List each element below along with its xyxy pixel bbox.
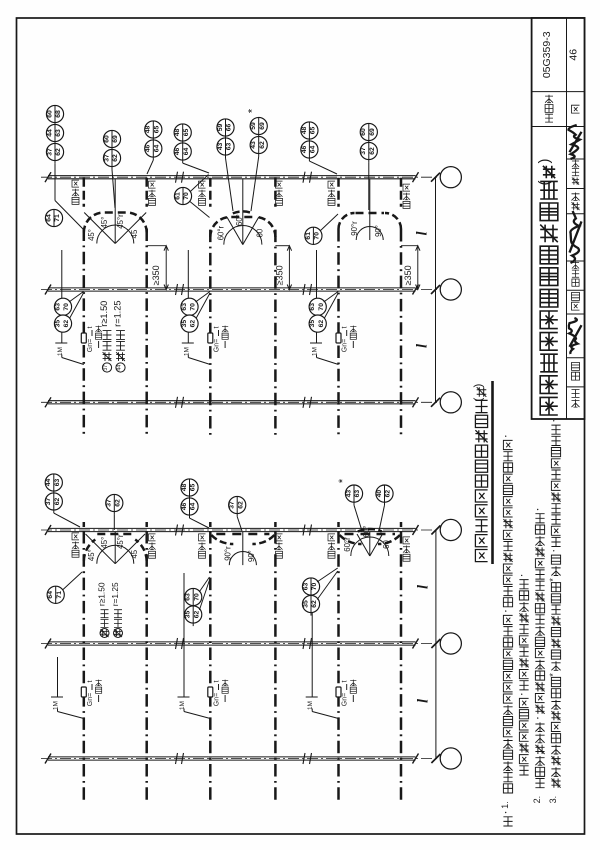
svg-text:64: 64 <box>45 214 52 222</box>
svg-text:48: 48 <box>145 126 152 134</box>
svg-text:64: 64 <box>47 591 54 599</box>
svg-text:35: 35 <box>54 320 61 328</box>
svg-text:71: 71 <box>54 214 61 222</box>
svg-text:05G359-3: 05G359-3 <box>541 31 553 78</box>
svg-text:63: 63 <box>354 490 361 498</box>
svg-text:69: 69 <box>112 135 119 143</box>
svg-text:l: l <box>415 344 431 348</box>
svg-text:≥350: ≥350 <box>403 265 413 285</box>
svg-text:1M: 1M <box>183 347 190 356</box>
svg-text:62: 62 <box>385 490 392 498</box>
svg-text:r=1.25: r=1.25 <box>113 301 123 327</box>
svg-text:45: 45 <box>130 229 139 238</box>
svg-text:t: t <box>342 326 349 328</box>
svg-text:45°: 45° <box>87 229 96 241</box>
svg-text:1M: 1M <box>312 347 319 356</box>
svg-text:1.: 1. <box>500 801 510 809</box>
svg-text:45°: 45° <box>87 549 96 561</box>
svg-text:Gn=: Gn= <box>342 339 349 352</box>
svg-text:64: 64 <box>190 503 197 511</box>
svg-text:l: l <box>416 699 432 703</box>
svg-text:61: 61 <box>305 232 312 240</box>
svg-text:70: 70 <box>63 303 70 311</box>
svg-text:62: 62 <box>311 600 318 608</box>
svg-text:65: 65 <box>154 126 161 134</box>
svg-text:Gn=: Gn= <box>214 693 221 706</box>
svg-text:2.: 2. <box>532 796 542 804</box>
svg-text:60°r: 60°r <box>216 226 225 241</box>
svg-text:Gn=: Gn= <box>342 693 349 706</box>
svg-text:62: 62 <box>190 320 197 328</box>
svg-text:(: ( <box>536 181 553 186</box>
svg-text:62: 62 <box>237 501 244 509</box>
svg-text:62: 62 <box>63 320 70 328</box>
svg-text:63: 63 <box>309 303 316 311</box>
svg-text:60°r: 60°r <box>343 537 352 552</box>
svg-text:65: 65 <box>183 129 190 137</box>
svg-text:r=1.25: r=1.25 <box>110 582 120 606</box>
svg-text:43: 43 <box>217 143 224 151</box>
svg-text:t: t <box>214 326 221 328</box>
svg-text:43: 43 <box>345 490 352 498</box>
svg-text:62: 62 <box>318 320 325 328</box>
svg-text:62: 62 <box>115 499 122 507</box>
svg-text:Gn=: Gn= <box>214 339 221 352</box>
svg-text:1M: 1M <box>307 701 314 710</box>
svg-text:48: 48 <box>301 127 308 135</box>
svg-text:90°: 90° <box>374 225 383 237</box>
svg-text:62: 62 <box>259 141 266 149</box>
svg-text:35: 35 <box>302 600 309 608</box>
svg-text:*: * <box>337 478 349 483</box>
svg-text:44: 44 <box>45 479 52 487</box>
svg-text:48: 48 <box>181 484 188 492</box>
svg-text:45°r: 45°r <box>116 534 125 549</box>
svg-text:66: 66 <box>226 124 233 132</box>
svg-text:63: 63 <box>302 583 309 591</box>
svg-text:60: 60 <box>103 135 110 143</box>
svg-text:63: 63 <box>55 129 62 137</box>
svg-text:r≥1.50: r≥1.50 <box>99 301 109 327</box>
svg-text:45°: 45° <box>100 537 109 549</box>
svg-text:71: 71 <box>56 591 63 599</box>
svg-text:45°: 45° <box>100 217 109 229</box>
svg-text:45: 45 <box>130 549 139 558</box>
svg-text:62: 62 <box>55 148 62 156</box>
svg-text:≥350: ≥350 <box>151 265 161 285</box>
svg-text:35: 35 <box>181 320 188 328</box>
svg-text:*: * <box>548 578 558 582</box>
svg-text:t: t <box>342 680 349 682</box>
svg-text:44: 44 <box>46 129 53 137</box>
svg-text:90°: 90° <box>247 550 256 562</box>
svg-text:l: l <box>415 231 431 235</box>
svg-text:64: 64 <box>310 146 317 154</box>
svg-text:63: 63 <box>185 593 192 601</box>
svg-text:70: 70 <box>193 593 200 601</box>
svg-text:62: 62 <box>54 498 61 506</box>
svg-text:37: 37 <box>360 147 367 155</box>
svg-text:1M: 1M <box>179 701 186 710</box>
svg-text:37: 37 <box>45 498 52 506</box>
svg-text:63: 63 <box>181 303 188 311</box>
svg-text:60: 60 <box>255 228 264 237</box>
svg-text:46: 46 <box>568 49 580 61</box>
svg-text:44: 44 <box>117 365 123 371</box>
svg-text:70: 70 <box>190 303 197 311</box>
svg-text:t: t <box>214 680 221 682</box>
svg-text:60°: 60° <box>362 526 371 538</box>
svg-text:≥350: ≥350 <box>274 265 284 285</box>
svg-text:t: t <box>87 326 94 328</box>
svg-text:90°r: 90°r <box>223 546 232 561</box>
svg-text:r≥1.50: r≥1.50 <box>97 582 107 606</box>
svg-text:46: 46 <box>301 146 308 154</box>
svg-text:70: 70 <box>318 303 325 311</box>
svg-text:60: 60 <box>382 540 391 549</box>
svg-text:63: 63 <box>226 143 233 151</box>
svg-text:63: 63 <box>54 303 61 311</box>
svg-text:65: 65 <box>190 484 197 492</box>
svg-text:48: 48 <box>174 129 181 137</box>
svg-text:90°r: 90°r <box>350 221 359 236</box>
svg-text:70: 70 <box>311 583 318 591</box>
svg-text:62: 62 <box>112 154 119 162</box>
svg-text:*: * <box>247 108 259 113</box>
svg-text:59: 59 <box>250 122 257 130</box>
svg-text:60: 60 <box>360 128 367 136</box>
svg-text:70: 70 <box>314 232 321 240</box>
svg-text:45°r: 45°r <box>116 214 125 229</box>
svg-text:60°: 60° <box>235 214 244 226</box>
svg-text:64: 64 <box>183 148 190 156</box>
svg-text:64: 64 <box>154 145 161 153</box>
svg-text:3.: 3. <box>548 796 558 804</box>
svg-text:t: t <box>87 680 94 682</box>
svg-text:35: 35 <box>185 611 192 619</box>
svg-text:): ) <box>536 159 553 164</box>
svg-text:60: 60 <box>46 110 53 118</box>
svg-text:46: 46 <box>145 145 152 153</box>
svg-text:(: ( <box>473 397 485 401</box>
svg-text:46: 46 <box>174 148 181 156</box>
svg-text:40: 40 <box>376 490 383 498</box>
svg-text:70: 70 <box>183 192 190 200</box>
svg-text:46: 46 <box>181 503 188 511</box>
svg-text:1M: 1M <box>57 347 64 356</box>
svg-text:43: 43 <box>250 141 257 149</box>
svg-text:63: 63 <box>54 479 61 487</box>
svg-text:): ) <box>473 384 485 388</box>
svg-text:1M: 1M <box>53 701 60 710</box>
svg-text:62: 62 <box>369 147 376 155</box>
svg-text:69: 69 <box>369 128 376 136</box>
svg-text:Gn=: Gn= <box>87 693 94 706</box>
svg-text:37: 37 <box>229 501 236 509</box>
svg-text:61: 61 <box>174 192 181 200</box>
svg-text:37: 37 <box>103 365 109 371</box>
svg-text:Gn=: Gn= <box>87 339 94 352</box>
svg-text:37: 37 <box>46 148 53 156</box>
svg-text:69: 69 <box>259 122 266 130</box>
svg-text:37: 37 <box>103 154 110 162</box>
svg-text:65: 65 <box>310 127 317 135</box>
svg-text:59: 59 <box>217 124 224 132</box>
svg-text:l: l <box>416 585 432 589</box>
svg-text:35: 35 <box>309 320 316 328</box>
svg-text:*: * <box>548 673 558 677</box>
svg-text:62: 62 <box>193 611 200 619</box>
svg-text:37: 37 <box>106 499 113 507</box>
svg-text:68: 68 <box>55 110 62 118</box>
